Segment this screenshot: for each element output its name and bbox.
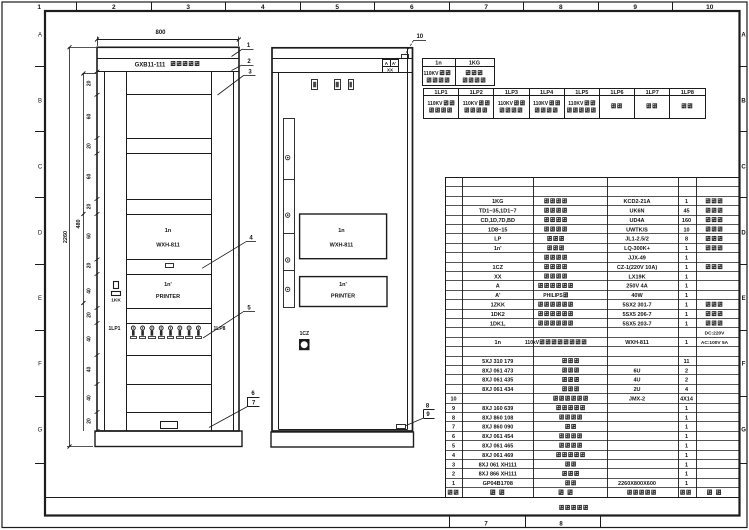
svg-text:1LP1: 1LP1 xyxy=(109,326,121,332)
svg-text:20: 20 xyxy=(87,418,93,424)
svg-text:1LP2: 1LP2 xyxy=(470,90,483,96)
svg-text:60: 60 xyxy=(87,233,93,239)
svg-text:A': A' xyxy=(392,61,396,66)
svg-text:PHILIPS: PHILIPS xyxy=(543,293,563,299)
svg-text:CD,1D,7D,BD: CD,1D,7D,BD xyxy=(480,218,515,224)
svg-text:1n': 1n' xyxy=(164,282,172,288)
svg-text:1n: 1n xyxy=(338,228,345,234)
svg-text:45: 45 xyxy=(683,209,689,215)
svg-text:GP04B1708: GP04B1708 xyxy=(483,481,513,487)
svg-text:1KG: 1KG xyxy=(469,60,480,66)
svg-text:20: 20 xyxy=(87,143,93,149)
svg-text:1n: 1n xyxy=(165,228,172,234)
svg-text:JL1-2.5/2: JL1-2.5/2 xyxy=(625,237,649,243)
svg-text:A: A xyxy=(496,284,500,290)
svg-text:4: 4 xyxy=(261,4,265,11)
svg-text:5: 5 xyxy=(452,444,455,450)
svg-text:1: 1 xyxy=(685,274,688,280)
svg-text:1: 1 xyxy=(452,481,455,487)
svg-text:UWTK/S: UWTK/S xyxy=(626,227,648,233)
svg-text:8XJ 061 454: 8XJ 061 454 xyxy=(482,434,514,440)
svg-text:110KV: 110KV xyxy=(463,101,479,107)
svg-text:2: 2 xyxy=(685,368,688,374)
svg-text:40: 40 xyxy=(87,288,93,294)
svg-text:110KV: 110KV xyxy=(498,101,514,107)
svg-text:6: 6 xyxy=(410,4,414,11)
svg-text:UD4A: UD4A xyxy=(630,218,645,224)
svg-text:B: B xyxy=(38,98,42,104)
svg-text:1KK: 1KK xyxy=(111,298,121,304)
svg-text:1n': 1n' xyxy=(339,282,347,288)
svg-text:PRINTER: PRINTER xyxy=(156,294,180,300)
svg-text:8: 8 xyxy=(685,237,688,243)
svg-text:1LP6: 1LP6 xyxy=(610,90,623,96)
svg-text:1KG: 1KG xyxy=(492,199,503,205)
svg-text:8: 8 xyxy=(452,415,455,421)
svg-text:160: 160 xyxy=(682,218,691,224)
svg-text:20: 20 xyxy=(87,80,93,86)
svg-text:CZ-1(220V 10A): CZ-1(220V 10A) xyxy=(617,265,658,271)
svg-text:A': A' xyxy=(495,293,501,299)
svg-text:8XJ 061 435: 8XJ 061 435 xyxy=(482,378,513,384)
svg-text:4U: 4U xyxy=(633,378,640,384)
svg-text:WXH-811: WXH-811 xyxy=(625,340,649,346)
svg-text:1: 1 xyxy=(685,284,688,290)
svg-text:B: B xyxy=(741,98,746,104)
svg-text:KCD2-21A: KCD2-21A xyxy=(624,199,651,205)
svg-text:1: 1 xyxy=(685,425,688,431)
svg-text:5XJ 310 179: 5XJ 310 179 xyxy=(482,359,513,365)
svg-text:250V 4A: 250V 4A xyxy=(626,284,647,290)
svg-text:8XJ 061 465: 8XJ 061 465 xyxy=(482,444,513,450)
svg-text:7: 7 xyxy=(452,425,455,431)
svg-text:11: 11 xyxy=(684,359,690,365)
svg-text:6U: 6U xyxy=(633,368,640,374)
svg-text:LX19K: LX19K xyxy=(628,274,645,280)
svg-text:E: E xyxy=(742,296,746,302)
svg-text:1: 1 xyxy=(685,462,688,468)
svg-text:C: C xyxy=(38,164,43,170)
svg-text:1n: 1n xyxy=(435,60,442,66)
svg-text:1n: 1n xyxy=(495,340,502,346)
svg-text:F: F xyxy=(38,361,42,367)
svg-text:2: 2 xyxy=(452,472,455,478)
svg-text:7: 7 xyxy=(484,4,488,11)
svg-text:D: D xyxy=(741,230,746,236)
svg-text:D: D xyxy=(38,230,43,236)
svg-text:2260X800X600: 2260X800X600 xyxy=(618,481,656,487)
svg-text:1CZ: 1CZ xyxy=(493,265,504,271)
svg-text:G: G xyxy=(741,427,746,433)
svg-text:5SX2 301-7: 5SX2 301-7 xyxy=(622,303,651,309)
svg-text:10: 10 xyxy=(416,34,423,40)
svg-text:LP: LP xyxy=(494,237,501,243)
svg-text:2: 2 xyxy=(112,4,116,11)
svg-text:1D8~15: 1D8~15 xyxy=(488,227,507,233)
svg-text:1: 1 xyxy=(685,434,688,440)
svg-text:2260: 2260 xyxy=(63,231,69,243)
svg-text:JMX-2: JMX-2 xyxy=(629,397,645,403)
svg-text:WXH-811: WXH-811 xyxy=(330,243,354,249)
svg-text:3: 3 xyxy=(186,4,190,11)
svg-text:AC:100V 5A: AC:100V 5A xyxy=(701,340,729,346)
svg-text:110KV: 110KV xyxy=(568,101,584,107)
svg-text:8XJ 860 090: 8XJ 860 090 xyxy=(482,425,513,431)
svg-text:8XJ 860 108: 8XJ 860 108 xyxy=(482,415,513,421)
svg-text:480: 480 xyxy=(76,219,82,228)
svg-text:1: 1 xyxy=(685,246,688,252)
svg-text:8XJ 061 434: 8XJ 061 434 xyxy=(482,387,514,393)
svg-text:60: 60 xyxy=(87,174,93,180)
svg-text:5SX5 206-7: 5SX5 206-7 xyxy=(622,312,651,318)
svg-text:60: 60 xyxy=(87,114,93,120)
svg-text:1CZ: 1CZ xyxy=(300,331,309,337)
svg-text:JJX-49: JJX-49 xyxy=(628,256,646,262)
svg-text:1LP8: 1LP8 xyxy=(681,90,694,96)
svg-text:110KV: 110KV xyxy=(533,101,549,107)
svg-text:1: 1 xyxy=(685,321,688,327)
svg-text:1: 1 xyxy=(685,199,688,205)
svg-text:2U: 2U xyxy=(633,387,640,393)
svg-text:8XJ 160 639: 8XJ 160 639 xyxy=(482,406,513,412)
svg-text:1: 1 xyxy=(685,312,688,318)
svg-text:WXH-811: WXH-811 xyxy=(156,242,180,248)
svg-text:40: 40 xyxy=(87,367,93,373)
svg-text:6: 6 xyxy=(452,434,455,440)
svg-text:XX: XX xyxy=(494,274,502,280)
svg-text:5: 5 xyxy=(335,4,339,11)
svg-text:GXB11-111: GXB11-111 xyxy=(135,63,166,69)
svg-text:1LP1: 1LP1 xyxy=(434,90,447,96)
svg-text:1: 1 xyxy=(685,415,688,421)
svg-text:8XJ 061 XH111: 8XJ 061 XH111 xyxy=(479,462,517,468)
svg-text:1LP7: 1LP7 xyxy=(646,90,659,96)
svg-text:1: 1 xyxy=(685,444,688,450)
svg-text:1LP5: 1LP5 xyxy=(575,90,588,96)
svg-text:1ZKK: 1ZKK xyxy=(491,303,505,309)
svg-text:A: A xyxy=(38,32,42,38)
svg-text:2: 2 xyxy=(685,378,688,384)
svg-text:1n': 1n' xyxy=(494,246,502,252)
svg-text:TD1~35,1D1~7: TD1~35,1D1~7 xyxy=(479,209,517,215)
svg-text:800: 800 xyxy=(155,30,166,36)
svg-text:1: 1 xyxy=(685,453,688,459)
svg-text:1DK1,: 1DK1, xyxy=(490,321,506,327)
svg-text:G: G xyxy=(38,427,43,433)
svg-text:1: 1 xyxy=(685,293,688,299)
svg-text:XX: XX xyxy=(387,68,393,73)
svg-text:3: 3 xyxy=(452,462,455,468)
svg-text:10: 10 xyxy=(683,227,689,233)
svg-text:10: 10 xyxy=(706,4,714,11)
svg-text:5SX5 203-7: 5SX5 203-7 xyxy=(622,321,651,327)
svg-text:110kV: 110kV xyxy=(525,340,540,346)
svg-text:10: 10 xyxy=(450,397,456,403)
svg-text:C: C xyxy=(741,164,746,170)
svg-text:1: 1 xyxy=(685,265,688,271)
svg-text:1: 1 xyxy=(685,340,688,346)
svg-text:9: 9 xyxy=(452,406,455,412)
svg-text:LQ-300K+: LQ-300K+ xyxy=(624,246,650,252)
svg-text:40: 40 xyxy=(87,336,93,342)
svg-text:E: E xyxy=(38,296,42,302)
svg-text:8: 8 xyxy=(559,4,563,11)
svg-text:8XJ 866 XH111: 8XJ 866 XH111 xyxy=(479,472,517,478)
svg-text:1: 1 xyxy=(37,4,41,11)
svg-text:8XJ 061 469: 8XJ 061 469 xyxy=(482,453,513,459)
svg-text:20: 20 xyxy=(87,263,93,269)
svg-text:1: 1 xyxy=(685,303,688,309)
svg-text:DC:220V: DC:220V xyxy=(705,331,726,337)
svg-text:9: 9 xyxy=(633,4,637,11)
svg-text:40W: 40W xyxy=(631,293,643,299)
svg-text:UK6N: UK6N xyxy=(630,209,645,215)
svg-text:4X14: 4X14 xyxy=(680,397,694,403)
svg-text:8XJ 061 473: 8XJ 061 473 xyxy=(482,368,513,374)
svg-text:1: 1 xyxy=(685,472,688,478)
svg-text:1DK2: 1DK2 xyxy=(491,312,505,318)
svg-text:20: 20 xyxy=(87,312,93,318)
svg-text:1LP3: 1LP3 xyxy=(505,90,518,96)
svg-text:A: A xyxy=(741,32,746,38)
svg-text:F: F xyxy=(742,361,746,367)
svg-text:110KV: 110KV xyxy=(423,71,439,77)
svg-text:1: 1 xyxy=(685,256,688,262)
svg-text:20: 20 xyxy=(87,204,93,210)
svg-text:1: 1 xyxy=(685,481,688,487)
svg-text:1: 1 xyxy=(685,406,688,412)
svg-text:40: 40 xyxy=(87,395,93,401)
svg-text:PRINTER: PRINTER xyxy=(331,293,355,299)
svg-text:1LP4: 1LP4 xyxy=(540,90,554,96)
svg-text:110KV: 110KV xyxy=(427,101,443,107)
